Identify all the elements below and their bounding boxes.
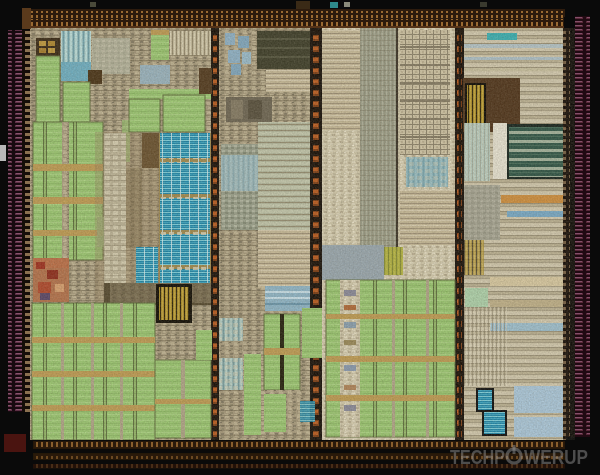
svg-text:TECHP: TECHP xyxy=(450,447,505,469)
svg-text:WERUP: WERUP xyxy=(524,447,588,469)
